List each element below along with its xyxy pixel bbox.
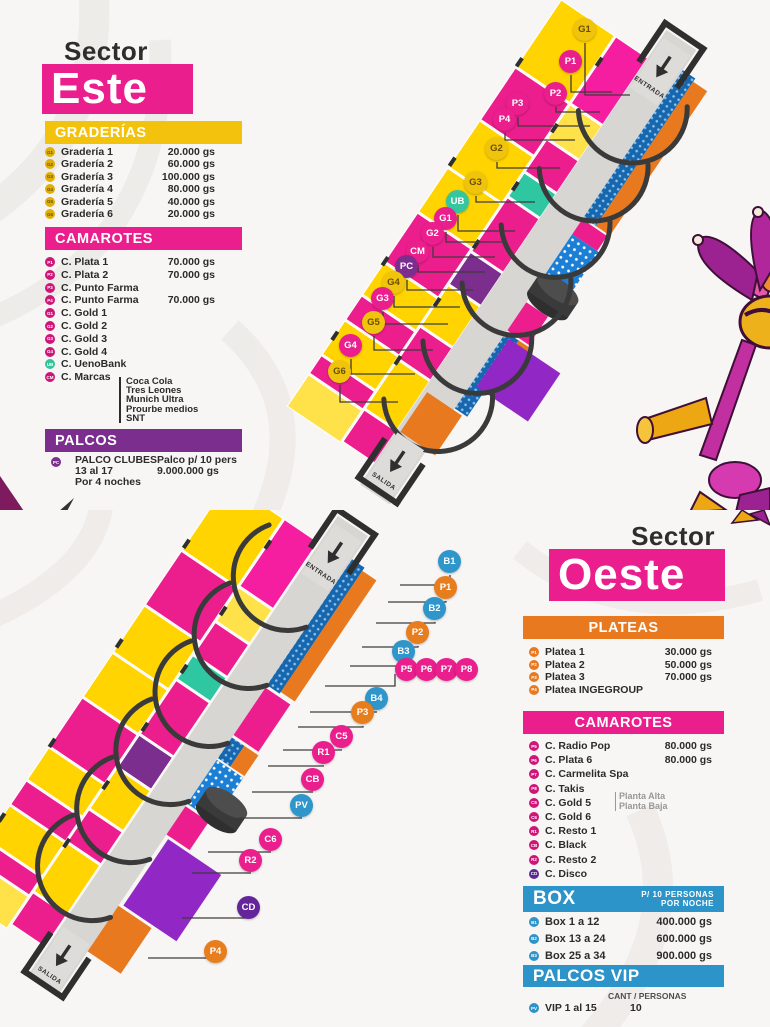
map-label-p4: P4 [493, 108, 516, 131]
row-code-badge: B1 [529, 917, 539, 927]
legend-row: B3Box 25 a 34900.000 gs [523, 949, 724, 963]
row-price: 70.000 gs [168, 269, 215, 281]
row-code-badge: UB [45, 359, 55, 369]
row-name: C. Black [545, 839, 586, 851]
map-label-p3: P3 [351, 701, 374, 724]
row-code-badge: B3 [529, 951, 539, 961]
legend-row: P3Platea 370.000 gs [523, 671, 724, 683]
sector-title: Sector [560, 521, 715, 552]
legend-row: R1C. Resto 1 [523, 825, 724, 837]
camarotes-header: CAMAROTES [45, 227, 242, 250]
row-name: Platea 2 [545, 659, 585, 671]
plateas-header: PLATEAS [523, 616, 724, 639]
map-label-g6-graderia: G6 [328, 360, 351, 383]
row-name: Platea 3 [545, 671, 585, 683]
box-header-note: P/ 10 PERSONAS POR NOCHE [641, 890, 714, 908]
row-code-badge: P4 [529, 685, 539, 695]
legend-row: P2Platea 250.000 gs [523, 659, 724, 671]
map-label-r1: R1 [312, 741, 335, 764]
row-price: 70.000 gs [168, 294, 215, 306]
camarotes-list: P1C. Plata 170.000 gs P2C. Plata 270.000… [45, 256, 217, 426]
row-code-badge: P3 [45, 283, 55, 293]
row-price: 30.000 gs [665, 646, 712, 658]
row-code-badge: P5 [529, 741, 539, 751]
map-label-r2: R2 [239, 849, 262, 872]
row-name: C. Plata 1 [61, 256, 108, 268]
este-stadium: ENTRADA SALIDA [272, 0, 757, 510]
map-label-b1: B1 [438, 550, 461, 573]
row-name: Gradería 5 [61, 196, 113, 208]
palcos-header: PALCOS [45, 429, 242, 452]
row-code-badge: C5 [529, 798, 539, 808]
row-price: 600.000 gs [656, 933, 712, 945]
vip-capacity-value: 10 [630, 1002, 642, 1014]
row-name: C. Gold 1 [61, 307, 107, 319]
row-code-badge: G5 [45, 197, 55, 207]
row-code-badge: R2 [529, 855, 539, 865]
map-label-g3-gold: G3 [371, 287, 394, 310]
row-name: Gradería 2 [61, 158, 113, 170]
vip-columns-label: CANT / PERSONAS [608, 991, 686, 1001]
legend-row: B1Box 1 a 12400.000 gs [523, 915, 724, 929]
legend-row: UBC. UenoBank [45, 358, 217, 370]
carnival-mask-illustration [637, 207, 770, 510]
palcos-vip-item: PV VIP 1 al 15 10 [523, 1002, 724, 1016]
legend-row: G4C. Gold 4 [45, 346, 217, 358]
legend-row: G2Gradería 260.000 gs [45, 158, 217, 170]
row-name: C. Resto 1 [545, 825, 596, 837]
camarotes-header: CAMAROTES [523, 711, 724, 734]
legend-row: P6C. Plata 680.000 gs [523, 754, 724, 766]
legend-row: G1Gradería 120.000 gs [45, 146, 217, 158]
map-label-g3-graderia: G3 [464, 171, 487, 194]
legend-row: G1C. Gold 1 [45, 307, 217, 319]
legend-row: G3C. Gold 3 [45, 333, 217, 345]
row-name: C. Gold 3 [61, 333, 107, 345]
row-name: C. Gold 2 [61, 320, 107, 332]
row-price: 50.000 gs [665, 659, 712, 671]
row-name: C. Gold 5 [545, 797, 591, 809]
row-name: C. Punto Farma [61, 282, 139, 294]
row-name: C. Carmelita Spa [545, 768, 628, 780]
row-name: C. Plata 2 [61, 269, 108, 281]
row-name: C. Punto Farma [61, 294, 139, 306]
row-code-badge: P7 [529, 769, 539, 779]
row-price: 80.000 gs [168, 183, 215, 195]
row-code-badge: P1 [529, 647, 539, 657]
map-label-g5-graderia: G5 [362, 311, 385, 334]
row-name: Platea 1 [545, 646, 585, 658]
map-label-cb: CB [301, 768, 324, 791]
map-label-pv: PV [290, 794, 313, 817]
row-code-badge: P2 [529, 660, 539, 670]
legend-row: P3C. Punto Farma [45, 282, 217, 294]
row-code-badge: CM [45, 372, 55, 382]
map-label-c5: C5 [330, 725, 353, 748]
brand: SNT [126, 414, 198, 423]
row-code-badge: P4 [45, 295, 55, 305]
map-label-g1-graderia: G1 [573, 18, 596, 41]
palcos-vip-header: PALCOS VIP [523, 965, 724, 987]
legend-row: C6C. Gold 6 [523, 811, 724, 823]
row-price: 60.000 gs [168, 158, 215, 170]
row-code-badge: CB [529, 840, 539, 850]
row-name: C. Resto 2 [545, 854, 596, 866]
legend-row: P1C. Plata 170.000 gs [45, 256, 217, 268]
palco-name: PALCO CLUBES 13 al 17 Por 4 noches [75, 455, 157, 487]
map-label-c6: C6 [259, 828, 282, 851]
map-label-p2: P2 [544, 82, 567, 105]
legend-row: P2C. Plata 270.000 gs [45, 269, 217, 281]
row-code-badge: G3 [45, 334, 55, 344]
map-label-p1: P1 [434, 576, 457, 599]
row-code-badge: G4 [45, 347, 55, 357]
row-name: C. Takis [545, 783, 585, 795]
map-label-p4: P4 [204, 940, 227, 963]
legend-row: P4Platea INGEGROUP [523, 684, 724, 696]
legend-row: B2Box 13 a 24600.000 gs [523, 932, 724, 946]
legend-row: P5C. Radio Pop80.000 gs [523, 740, 724, 752]
row-price: 20.000 gs [168, 208, 215, 220]
gold5-planta-note: Planta Alta Planta Baja [615, 792, 668, 811]
row-code-badge: G1 [45, 308, 55, 318]
sector-name: Este [42, 64, 193, 114]
corner-decoration [732, 510, 770, 525]
legend-row: P1Platea 130.000 gs [523, 646, 724, 658]
row-price: 70.000 gs [665, 671, 712, 683]
graderias-header: GRADERÍAS [45, 121, 242, 144]
row-code-badge: P2 [45, 270, 55, 280]
row-code-badge: G2 [45, 321, 55, 331]
map-label-p2: P2 [406, 621, 429, 644]
row-name: Gradería 1 [61, 146, 113, 158]
legend-row: R2C. Resto 2 [523, 854, 724, 866]
row-code-badge: G1 [45, 147, 55, 157]
sector-este-panel: ENTRADA SALIDA [0, 0, 770, 510]
camarotes-list: P5C. Radio Pop80.000 gs P6C. Plata 680.0… [523, 740, 724, 886]
sector-name: Oeste [549, 549, 725, 601]
map-label-p1: P1 [559, 50, 582, 73]
row-name: Platea INGEGROUP [545, 684, 643, 696]
row-name: C. Marcas [61, 371, 111, 383]
row-code-badge: B2 [529, 934, 539, 944]
row-name: Gradería 3 [61, 171, 113, 183]
legend-row: P4C. Punto Farma70.000 gs [45, 294, 217, 306]
row-name: C. Radio Pop [545, 740, 610, 752]
row-code-badge: PC [51, 457, 61, 467]
carnival-seating-poster: ENTRADA SALIDA [0, 0, 770, 1027]
row-name: C. Gold 6 [545, 811, 591, 823]
row-code-badge: C6 [529, 812, 539, 822]
row-name: Box 13 a 24 [545, 933, 606, 945]
legend-row: G6Gradería 620.000 gs [45, 208, 217, 220]
row-price: 80.000 gs [665, 754, 712, 766]
plateas-list: P1Platea 130.000 gs P2Platea 250.000 gs … [523, 646, 724, 698]
row-name: Gradería 6 [61, 208, 113, 220]
row-price: 80.000 gs [665, 740, 712, 752]
legend-row: G2C. Gold 2 [45, 320, 217, 332]
row-name: C. Plata 6 [545, 754, 592, 766]
row-code-badge: P3 [529, 672, 539, 682]
box-header: BOX P/ 10 PERSONAS POR NOCHE [523, 886, 724, 912]
row-name: C. UenoBank [61, 358, 126, 370]
row-code-badge: G3 [45, 172, 55, 182]
row-code-badge: CD [529, 869, 539, 879]
row-name: C. Disco [545, 868, 587, 880]
palco-detail: Palco p/ 10 pers 9.000.000 gs [157, 455, 237, 477]
row-name: C. Gold 4 [61, 346, 107, 358]
row-code-badge: P8 [529, 784, 539, 794]
row-price: 20.000 gs [168, 146, 215, 158]
legend-row: P7C. Carmelita Spa [523, 768, 724, 780]
row-code-badge: P1 [45, 257, 55, 267]
legend-row: G4Gradería 480.000 gs [45, 183, 217, 195]
row-code-badge: G6 [45, 209, 55, 219]
map-label-p8: P8 [455, 658, 478, 681]
row-price: 70.000 gs [168, 256, 215, 268]
row-code-badge: G2 [45, 159, 55, 169]
map-label-b2: B2 [423, 597, 446, 620]
row-name: Box 25 a 34 [545, 950, 606, 962]
marcas-brand-list: Coca Cola Tres Leones Munich Ultra Prour… [119, 377, 198, 423]
row-code-badge: P6 [529, 755, 539, 765]
legend-row: G3Gradería 3100.000 gs [45, 171, 217, 183]
row-name: VIP 1 al 15 [545, 1002, 597, 1014]
row-name: Gradería 4 [61, 183, 113, 195]
box-header-title: BOX [533, 888, 576, 910]
box-list: B1Box 1 a 12400.000 gs B2Box 13 a 24600.… [523, 915, 724, 967]
legend-row: CDC. Disco [523, 868, 724, 880]
graderias-list: G1Gradería 120.000 gs G2Gradería 260.000… [45, 146, 217, 224]
row-price: 40.000 gs [168, 196, 215, 208]
sector-title: Sector [64, 36, 148, 67]
sector-oeste-panel: ENTRADA SALIDA [0, 510, 770, 1027]
row-price: 400.000 gs [656, 916, 712, 928]
row-code-badge: R1 [529, 826, 539, 836]
row-code-badge: G4 [45, 184, 55, 194]
row-name: Box 1 a 12 [545, 916, 599, 928]
legend-row: CBC. Black [523, 839, 724, 851]
row-price: 100.000 gs [162, 171, 215, 183]
row-price: 900.000 gs [656, 950, 712, 962]
map-label-g4-gold: G4 [339, 334, 362, 357]
legend-row: G5Gradería 540.000 gs [45, 196, 217, 208]
map-label-cd: CD [237, 896, 260, 919]
row-code-badge: PV [529, 1003, 539, 1013]
palcos-item: PC PALCO CLUBES 13 al 17 Por 4 noches Pa… [45, 455, 242, 495]
legend-row: PV VIP 1 al 15 10 [523, 1002, 724, 1014]
map-label-g2-graderia: G2 [485, 137, 508, 160]
